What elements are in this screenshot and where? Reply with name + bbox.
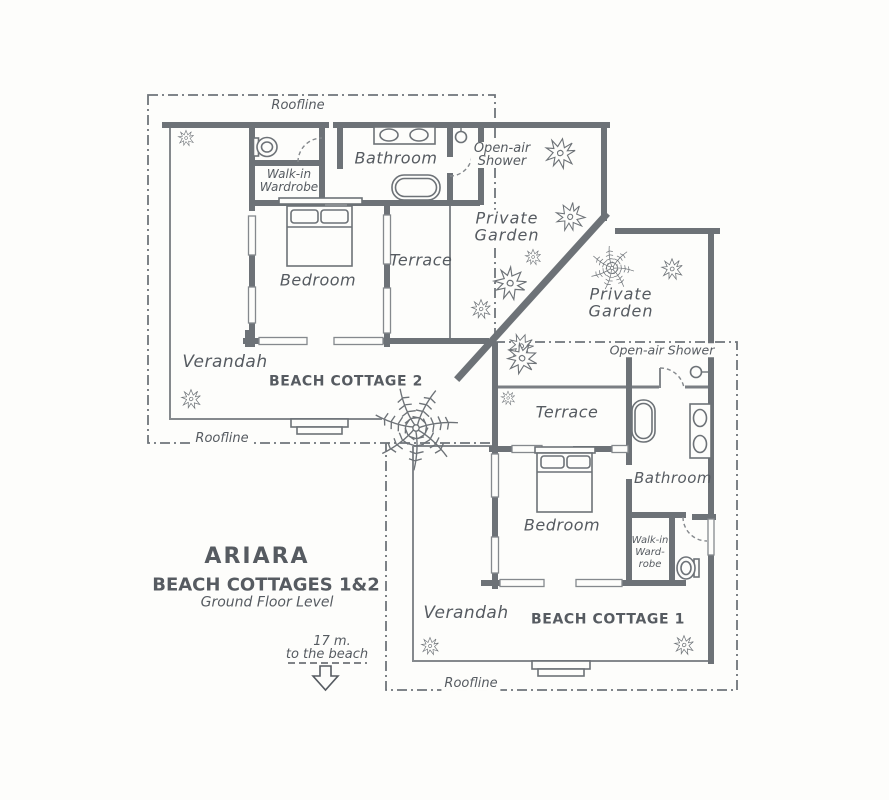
label-cottage2-name: BEACH COTTAGE 2 <box>269 374 423 389</box>
label-cottage1-private-garden: Private Garden <box>589 286 654 321</box>
palm-tree-icon <box>373 386 458 471</box>
shrub-icon <box>182 390 201 409</box>
label-cottage2-walkin-wardrobe: Walk-in Wardrobe <box>260 168 318 194</box>
beach-direction-label: to the beach <box>286 648 368 662</box>
window <box>708 519 714 555</box>
floor-plan: Roofline Roofline Roofline Bathroom Walk… <box>0 0 889 800</box>
shower-head-icon <box>691 367 712 378</box>
label-cottage2-openair-shower: Open-air Shower <box>471 142 533 168</box>
beach-indicator <box>288 663 367 690</box>
shrub-icon <box>543 136 576 169</box>
shrub-icon <box>472 300 491 319</box>
window <box>612 446 628 453</box>
label-cottage2-bedroom: Bedroom <box>280 271 356 288</box>
label-cottage2-terrace: Terrace <box>390 251 453 268</box>
roofline-label-cottage2-top: Roofline <box>268 99 327 113</box>
window <box>384 288 391 333</box>
label-cottage2-private-garden: Private Garden <box>472 210 543 245</box>
label-cottage1-bathroom: Bathroom <box>634 470 712 486</box>
step-icon <box>291 419 348 434</box>
shrub-icon <box>662 259 682 279</box>
label-cottage1-name: BEACH COTTAGE 1 <box>531 612 685 627</box>
window <box>334 338 383 345</box>
shrub-icon <box>422 638 439 655</box>
plan-title-resort: ARIARA <box>204 545 309 569</box>
window <box>249 216 256 255</box>
door-arc <box>450 154 472 176</box>
label-line: Private <box>589 285 652 304</box>
sink-icon <box>690 404 711 458</box>
toilet-icon <box>254 138 278 157</box>
toilet-icon <box>677 557 699 579</box>
label-line: Garden <box>475 226 540 245</box>
label-line: Shower <box>478 154 526 169</box>
label-line: Ward- <box>635 547 665 558</box>
door-arc <box>298 138 322 162</box>
window <box>249 287 256 323</box>
shrub-icon <box>551 198 588 235</box>
bathtub-icon <box>632 400 655 442</box>
shrub-icon <box>501 391 515 405</box>
window <box>492 454 499 497</box>
label-line: Garden <box>589 302 654 321</box>
label-cottage2-verandah: Verandah <box>182 353 267 371</box>
bed-icon <box>279 198 362 266</box>
shrub-icon <box>675 636 694 655</box>
label-line: Wardrobe <box>260 180 318 194</box>
bathtub-icon <box>392 175 440 200</box>
window <box>259 338 307 345</box>
window <box>492 537 499 573</box>
window <box>500 580 544 587</box>
label-line: Walk-in <box>632 535 669 546</box>
roofline-label-cottage1-bottom: Roofline <box>441 677 500 691</box>
label-cottage1-walkin-wardrobe: Walk-in Ward- robe <box>632 535 669 571</box>
label-line: Private <box>475 209 538 228</box>
label-cottage1-verandah: Verandah <box>423 604 508 622</box>
label-cottage1-openair-shower: Open-air Shower <box>607 343 718 357</box>
label-line: robe <box>639 559 662 570</box>
label-cottage2-bathroom: Bathroom <box>355 149 438 166</box>
plan-title-level: Ground Floor Level <box>201 595 334 610</box>
roofline-label-cottage2-bottom: Roofline <box>192 432 251 446</box>
door-arc <box>660 368 684 388</box>
label-cottage1-terrace: Terrace <box>536 403 599 420</box>
shrub-icon <box>178 130 193 145</box>
bed-icon <box>535 447 595 512</box>
window <box>576 580 622 587</box>
shrub-icon <box>525 249 540 264</box>
step-icon <box>532 661 590 676</box>
label-cottage1-bedroom: Bedroom <box>524 516 600 533</box>
door-arc <box>683 517 707 541</box>
beach-arrow-icon <box>313 666 338 690</box>
label-line: Walk-in <box>267 167 311 181</box>
sink-icon <box>374 127 435 144</box>
plan-title-subtitle: BEACH COTTAGES 1&2 <box>152 575 380 594</box>
